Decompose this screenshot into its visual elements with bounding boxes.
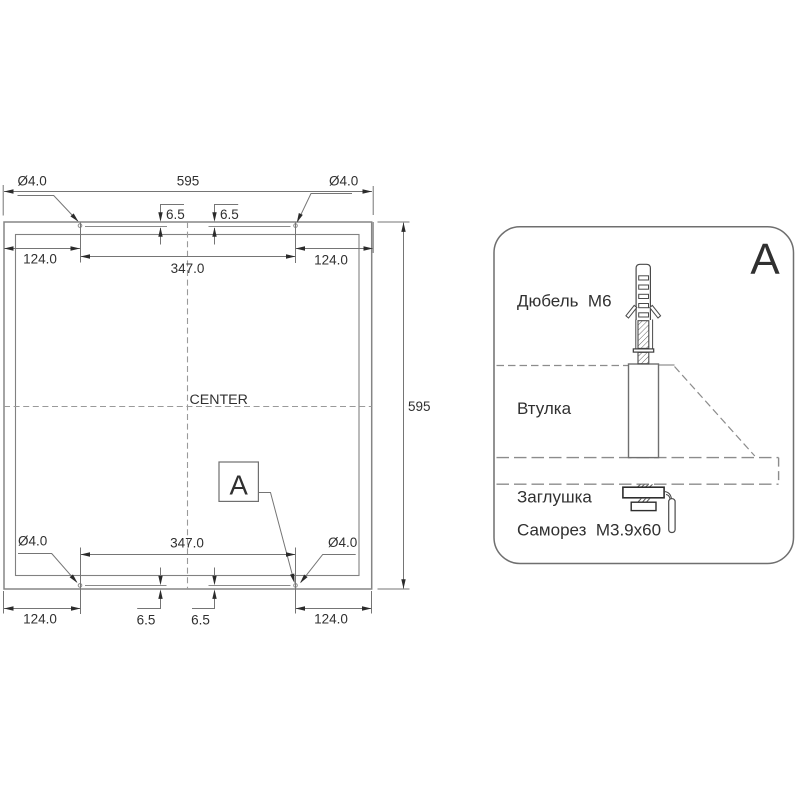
svg-text:124.0: 124.0 xyxy=(23,252,57,267)
svg-text:Ø4.0: Ø4.0 xyxy=(328,535,357,550)
svg-text:6.5: 6.5 xyxy=(137,612,156,627)
svg-text:A: A xyxy=(750,235,780,284)
svg-text:347.0: 347.0 xyxy=(170,536,204,551)
svg-text:6.5: 6.5 xyxy=(166,207,185,222)
svg-text:Ø4.0: Ø4.0 xyxy=(18,534,47,549)
svg-text:Ø4.0: Ø4.0 xyxy=(18,174,47,189)
svg-text:124.0: 124.0 xyxy=(314,252,348,267)
svg-text:347.0: 347.0 xyxy=(171,261,205,276)
svg-text:Саморез М3.9х60: Саморез М3.9х60 xyxy=(517,521,661,540)
svg-text:6.5: 6.5 xyxy=(220,207,239,222)
svg-text:Втулка: Втулка xyxy=(517,399,572,418)
svg-text:Заглушка: Заглушка xyxy=(517,487,592,506)
svg-text:124.0: 124.0 xyxy=(314,612,348,627)
svg-text:124.0: 124.0 xyxy=(23,612,57,627)
svg-text:CENTER: CENTER xyxy=(190,392,248,408)
svg-text:595: 595 xyxy=(177,174,200,189)
svg-text:A: A xyxy=(230,470,249,501)
svg-text:Дюбель М6: Дюбель М6 xyxy=(517,292,612,311)
svg-text:Ø4.0: Ø4.0 xyxy=(329,174,358,189)
svg-text:6.5: 6.5 xyxy=(191,612,210,627)
svg-text:595: 595 xyxy=(408,399,431,414)
